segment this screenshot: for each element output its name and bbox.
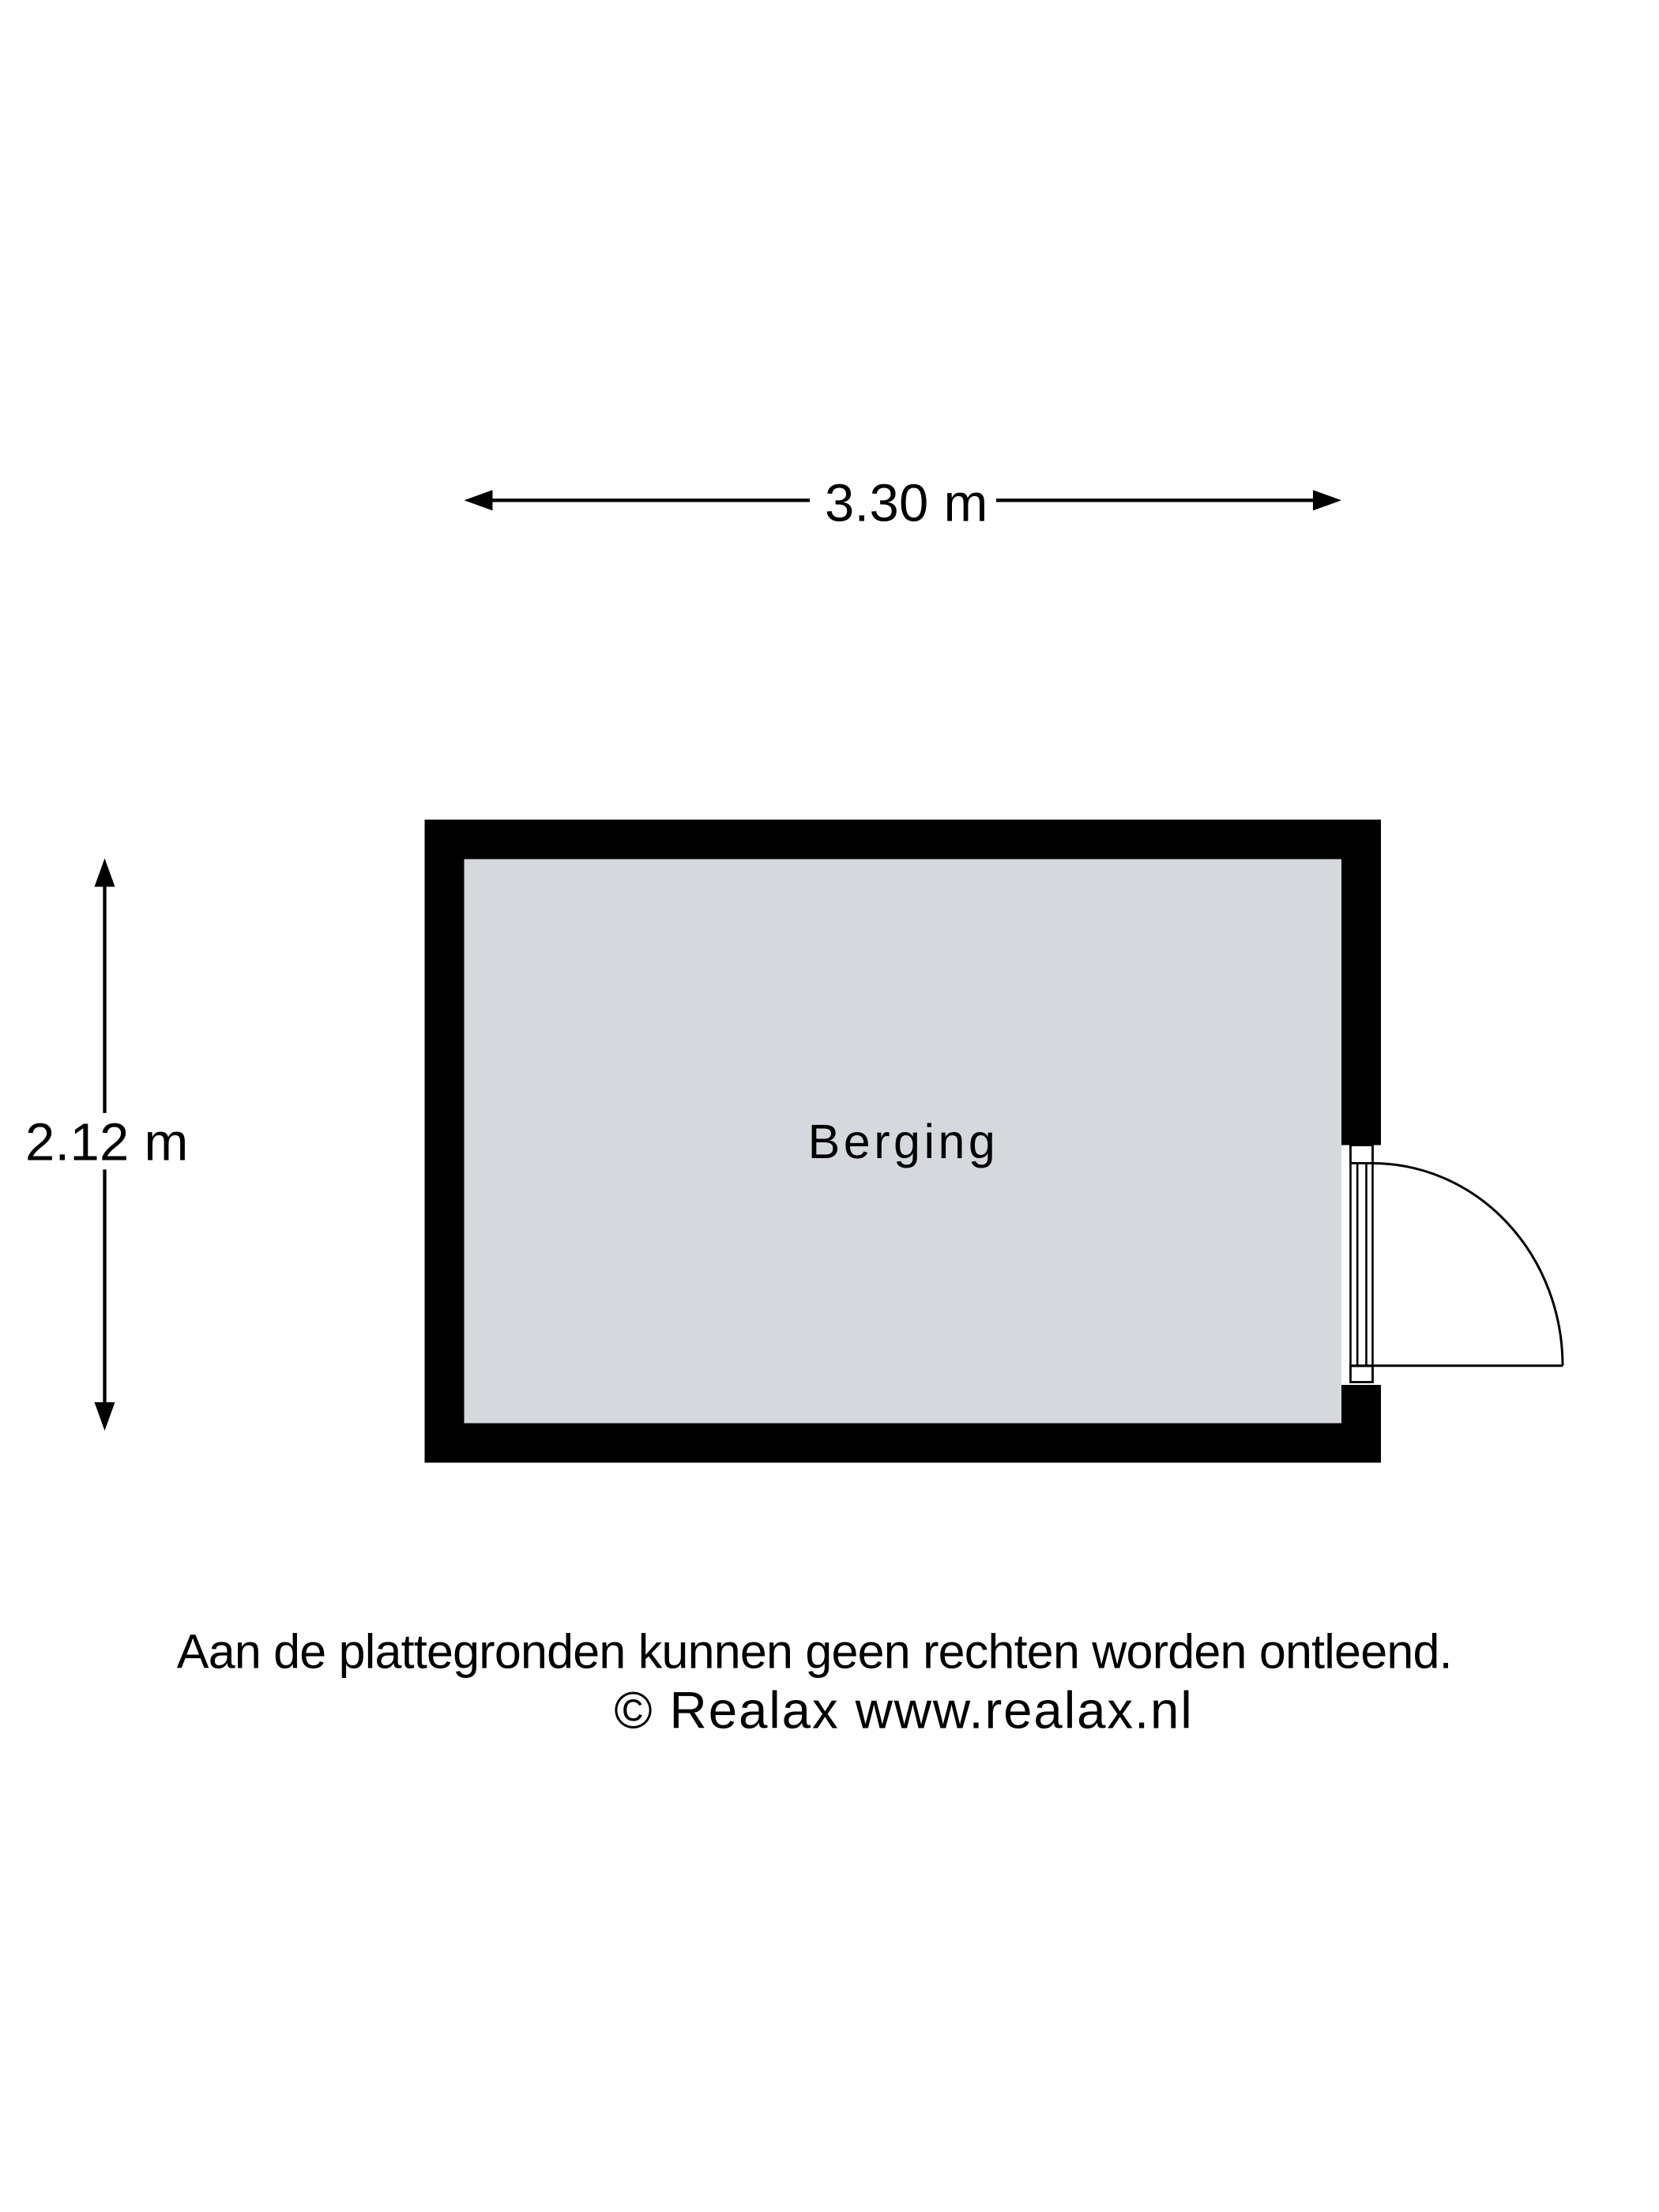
svg-text:2.12 m: 2.12 m <box>25 1113 189 1172</box>
svg-text:3.30 m: 3.30 m <box>825 474 988 533</box>
svg-text:Aan de plattegronden kunnen ge: Aan de plattegronden kunnen geen rechten… <box>177 1625 1452 1679</box>
svg-text:Berging: Berging <box>808 1115 999 1168</box>
svg-text:© Realax www.realax.nl: © Realax www.realax.nl <box>614 1682 1193 1740</box>
